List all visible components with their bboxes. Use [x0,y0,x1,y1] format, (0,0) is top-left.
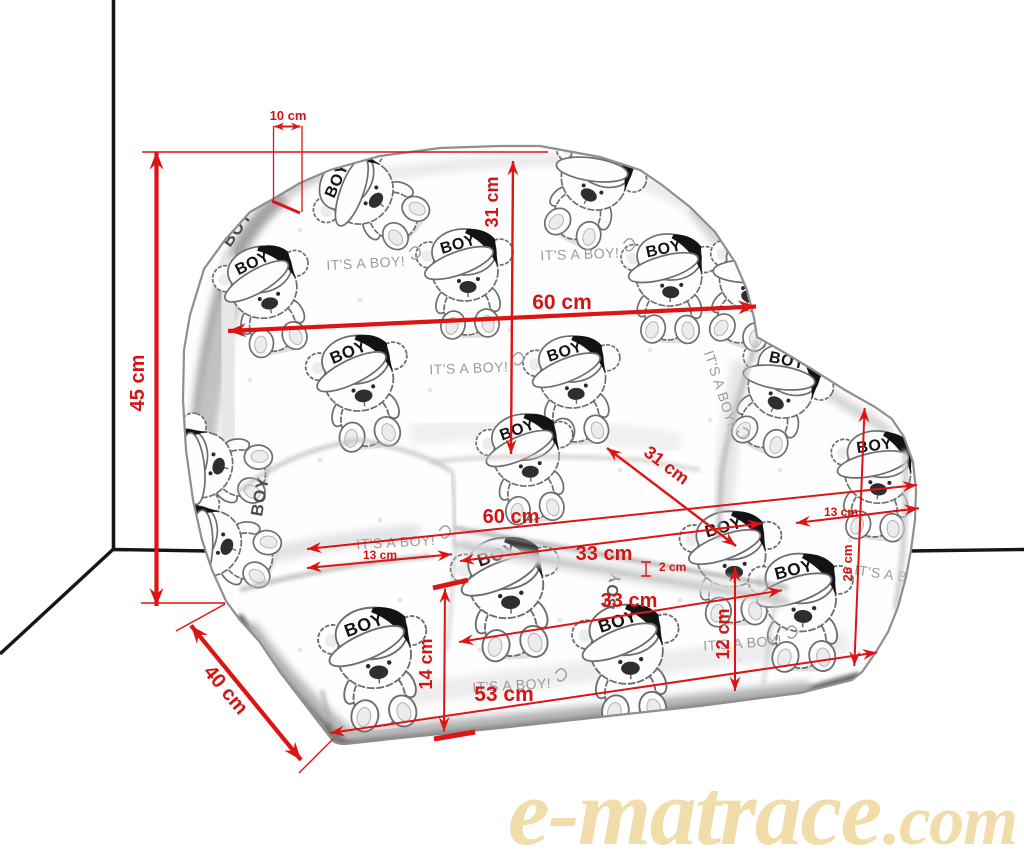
svg-text:53 cm: 53 cm [474,683,534,706]
svg-text:14 cm: 14 cm [416,638,436,689]
svg-text:33 cm: 33 cm [601,590,658,612]
svg-text:10 cm: 10 cm [270,108,307,123]
svg-text:60 cm: 60 cm [532,291,592,314]
svg-text:13 cm: 13 cm [363,548,397,562]
svg-text:60 cm: 60 cm [483,506,540,528]
svg-text:33 cm: 33 cm [576,543,633,565]
svg-text:31 cm: 31 cm [482,176,502,227]
svg-text:45 cm: 45 cm [127,355,149,412]
svg-text:26 cm: 26 cm [840,545,855,582]
svg-text:2 cm: 2 cm [659,560,686,574]
svg-text:12 cm: 12 cm [713,608,733,659]
svg-text:13 cm: 13 cm [824,505,858,519]
